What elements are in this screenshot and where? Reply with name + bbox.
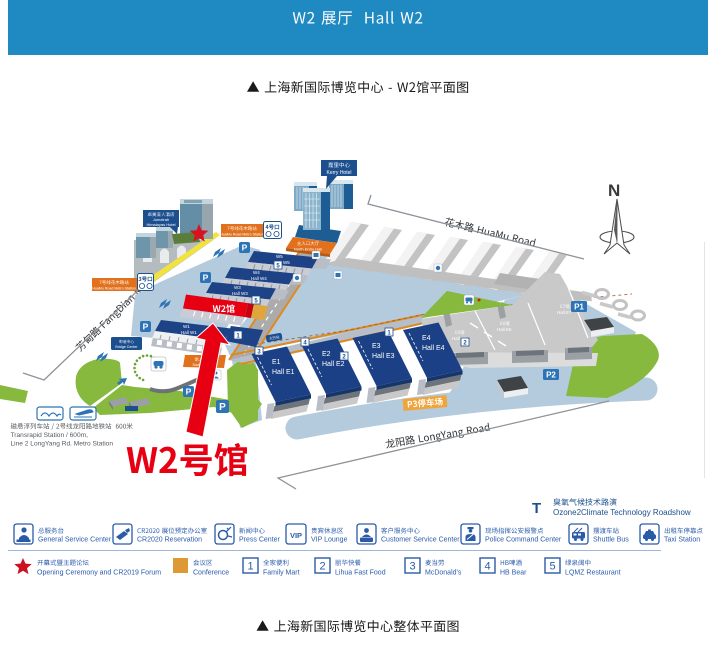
- svg-text:Taxi Station: Taxi Station: [664, 537, 700, 544]
- svg-text:VIP Lounge: VIP Lounge: [311, 537, 348, 544]
- svg-text:Hall E7: Hall E7: [557, 310, 572, 315]
- svg-text:General Service Center: General Service Center: [38, 537, 112, 544]
- svg-text:Hall W4: Hall W4: [251, 276, 267, 281]
- svg-text:P: P: [242, 243, 248, 253]
- svg-text:LQMZ Restaurant: LQMZ Restaurant: [565, 570, 621, 577]
- svg-text:Hall E2: Hall E2: [322, 361, 345, 368]
- svg-text:Transrapid Station / 600m,: Transrapid Station / 600m,: [11, 432, 89, 439]
- svg-text:W4: W4: [253, 270, 260, 275]
- svg-text:P2: P2: [546, 371, 556, 380]
- svg-text:Police Command Center: Police Command Center: [485, 537, 562, 544]
- svg-text:W3: W3: [234, 285, 241, 290]
- svg-text:Hall E6: Hall E6: [497, 327, 512, 332]
- svg-text:P: P: [186, 387, 192, 397]
- svg-text:Line 2 LongYang Rd. Metro Stat: Line 2 LongYang Rd. Metro Station: [11, 441, 114, 448]
- svg-text:Himalayas Hotel: Himalayas Hotel: [146, 222, 175, 227]
- svg-text:E4: E4: [422, 335, 431, 342]
- svg-text:Ozone2Climate Technology Roads: Ozone2Climate Technology Roadshow: [553, 508, 691, 517]
- svg-text:5: 5: [549, 561, 555, 573]
- svg-text:W1: W1: [183, 324, 190, 329]
- svg-text:E2: E2: [322, 351, 331, 358]
- svg-text:Hall E4: Hall E4: [422, 345, 445, 352]
- svg-text:1: 1: [247, 561, 253, 573]
- svg-text:3: 3: [409, 561, 415, 573]
- svg-text:E3: E3: [372, 343, 381, 350]
- svg-text:Kerry Hotel: Kerry Hotel: [326, 170, 351, 176]
- svg-text:Family Mart: Family Mart: [263, 570, 300, 577]
- svg-text:T: T: [532, 500, 541, 517]
- svg-text:Press Center: Press Center: [239, 537, 281, 544]
- svg-text:P: P: [203, 273, 209, 283]
- svg-text:Opening Ceremony and CR2019 Fo: Opening Ceremony and CR2019 Forum: [37, 570, 161, 577]
- svg-text:Hall W3: Hall W3: [232, 291, 248, 296]
- svg-text:Conference: Conference: [193, 570, 229, 577]
- svg-text:4: 4: [484, 561, 490, 573]
- svg-text:McDonald's: McDonald's: [425, 570, 462, 577]
- svg-text:Hall W1: Hall W1: [181, 330, 197, 335]
- svg-text:HB Bear: HB Bear: [500, 570, 527, 577]
- svg-text:P: P: [143, 322, 149, 332]
- svg-text:E1: E1: [272, 359, 281, 366]
- svg-text:P: P: [219, 402, 226, 413]
- svg-text:HuaMu Road Metro Station: HuaMu Road Metro Station: [92, 287, 136, 291]
- svg-text:HuaMu Road Metro Station: HuaMu Road Metro Station: [220, 233, 264, 237]
- svg-text:P1: P1: [574, 303, 584, 312]
- svg-text:CR2020 Reservation: CR2020 Reservation: [137, 537, 202, 544]
- svg-text:Bridge Center: Bridge Center: [115, 345, 138, 349]
- svg-text:Hall E3: Hall E3: [372, 353, 395, 360]
- svg-text:2: 2: [319, 561, 325, 573]
- svg-text:N: N: [608, 181, 620, 200]
- svg-text:Shuttle Bus: Shuttle Bus: [593, 537, 629, 544]
- svg-text:North Entry Hall: North Entry Hall: [294, 247, 322, 252]
- svg-text:Lihua Fast Food: Lihua Fast Food: [335, 570, 386, 577]
- svg-text:Hall E1: Hall E1: [272, 369, 295, 376]
- svg-text:W5: W5: [276, 254, 283, 259]
- svg-text:VIP: VIP: [290, 531, 302, 540]
- svg-text:Customer Service Center: Customer Service Center: [381, 537, 460, 544]
